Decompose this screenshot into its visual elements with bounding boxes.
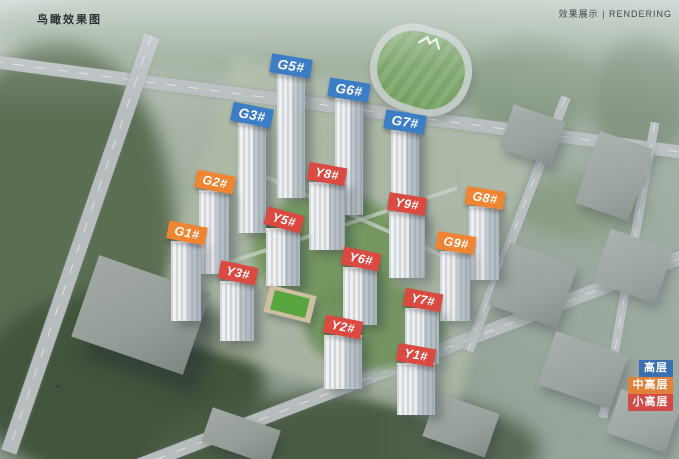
car <box>55 385 60 388</box>
tower-g5 <box>277 74 305 198</box>
legend: 高层 中高层 小高层 <box>628 360 673 411</box>
tower-y6 <box>343 267 377 325</box>
legend-item-small-high-rise: 小高层 <box>628 394 673 411</box>
tower-y8 <box>309 182 345 250</box>
aerial-rendering-scene: G5# G6# G7# G3# G2# G1# G8# G9# Y8# Y9# … <box>0 0 679 459</box>
tower-y2 <box>324 335 362 389</box>
tower-g3 <box>238 123 266 233</box>
legend-item-mid-high-rise: 中高层 <box>628 377 673 394</box>
tower-y5 <box>266 228 300 286</box>
tower-g1 <box>171 241 201 321</box>
tower-y3 <box>220 281 254 341</box>
legend-item-high-rise: 高层 <box>639 360 673 377</box>
tower-g9 <box>440 251 470 321</box>
rendering-caption: 效果展示 | RENDERING <box>559 7 672 20</box>
page-title: 鸟瞰效果图 <box>37 11 102 27</box>
tower-y9 <box>389 212 425 278</box>
kindergarten-green-roof <box>270 290 310 318</box>
tower-y1 <box>397 363 435 415</box>
